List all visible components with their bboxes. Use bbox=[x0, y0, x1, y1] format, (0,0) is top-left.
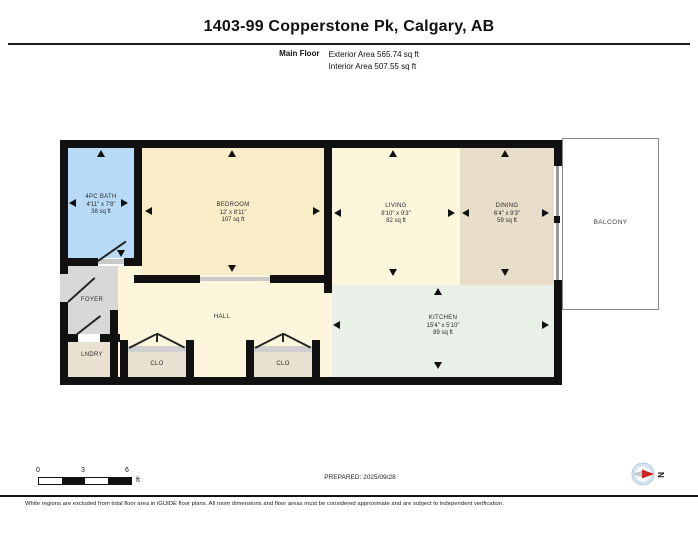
balcony-sliding-door bbox=[556, 166, 559, 280]
floorplan-page: 1403-99 Copperstone Pk, Calgary, AB Main… bbox=[0, 0, 698, 540]
arrow-kitchen-down bbox=[434, 362, 442, 369]
room-balcony: BALCONY bbox=[562, 138, 659, 310]
wall-bedroom-bottom-right bbox=[270, 275, 332, 283]
balcony-label: BALCONY bbox=[563, 219, 658, 226]
dining-label: DINING 6'4" x 9'3" 59 sq ft bbox=[462, 203, 552, 226]
arrow-kitchen-up bbox=[434, 288, 442, 295]
wall-bath-bottom-right bbox=[124, 258, 142, 266]
wall-bottom bbox=[60, 377, 562, 385]
closet-1-track bbox=[128, 346, 186, 352]
arrow-living-up bbox=[389, 150, 397, 157]
compass-icon: N bbox=[622, 461, 674, 489]
wall-laundry-right bbox=[110, 310, 118, 385]
scale-seg-1 bbox=[39, 478, 62, 484]
arrow-kitchen-right bbox=[542, 321, 549, 329]
wall-left-lower bbox=[60, 302, 68, 385]
wall-closet2-right bbox=[312, 340, 320, 385]
kitchen-label: KITCHEN 15'4" x 5'10" 89 sq ft bbox=[398, 315, 488, 338]
sliding-door-handle bbox=[554, 216, 560, 223]
compass-north-label: N bbox=[656, 472, 665, 478]
closet-2-track bbox=[254, 346, 312, 352]
scale-seg-4 bbox=[108, 478, 131, 484]
footer-divider bbox=[0, 495, 698, 497]
closet2-label: CLO bbox=[253, 361, 313, 369]
foyer-label: FOYER bbox=[63, 297, 121, 305]
arrow-bath-up bbox=[97, 150, 105, 157]
scale-unit: ft bbox=[136, 477, 140, 484]
wall-bedroom-bottom-left bbox=[134, 275, 200, 283]
wall-bath-bottom-left bbox=[60, 258, 98, 266]
scale-tick-0: 0 bbox=[32, 467, 44, 474]
arrow-bedroom-right bbox=[313, 207, 320, 215]
floor-plan: BALCONY bbox=[0, 0, 698, 540]
arrow-kitchen-left bbox=[333, 321, 340, 329]
laundry-label: LNDRY bbox=[67, 352, 117, 360]
prepared-date: PREPARED: 2025/09/28 bbox=[285, 474, 435, 481]
scale-tick-3: 3 bbox=[77, 467, 89, 474]
scale-bar bbox=[38, 477, 132, 485]
bedroom-label: BEDROOM 12' x 8'11" 107 sq ft bbox=[188, 202, 278, 225]
wall-bedroom-right bbox=[324, 140, 332, 293]
arrow-bath-down bbox=[117, 250, 125, 257]
scale-seg-3 bbox=[85, 478, 108, 484]
disclaimer-text: White regions are excluded from total fl… bbox=[25, 501, 685, 507]
scale-seg-2 bbox=[62, 478, 85, 484]
bath-label: 4PC BATH 4'11" x 7'8" 38 sq ft bbox=[56, 194, 146, 217]
arrow-bedroom-left bbox=[145, 207, 152, 215]
arrow-living-left bbox=[334, 209, 341, 217]
room-laundry bbox=[68, 342, 110, 377]
wall-closet1-right bbox=[186, 340, 194, 385]
arrow-living-down bbox=[389, 269, 397, 276]
arrow-bedroom-up bbox=[228, 150, 236, 157]
arrow-dining-up bbox=[501, 150, 509, 157]
closet1-bifold-notch bbox=[156, 333, 158, 342]
wall-right-upper bbox=[554, 140, 562, 166]
hall-label: HALL bbox=[192, 314, 252, 322]
arrow-living-right bbox=[448, 209, 455, 217]
bath-door-sill bbox=[98, 259, 124, 264]
scale-tick-6: 6 bbox=[121, 467, 133, 474]
closet2-bifold-notch bbox=[282, 333, 284, 342]
arrow-bedroom-down bbox=[228, 265, 236, 272]
living-label: LIVING 8'10" x 9'3" 82 sq ft bbox=[351, 203, 441, 226]
bedroom-door-sill bbox=[200, 277, 270, 281]
arrow-dining-down bbox=[501, 269, 509, 276]
wall-right-lower bbox=[554, 280, 562, 385]
closet1-label: CLO bbox=[127, 361, 187, 369]
